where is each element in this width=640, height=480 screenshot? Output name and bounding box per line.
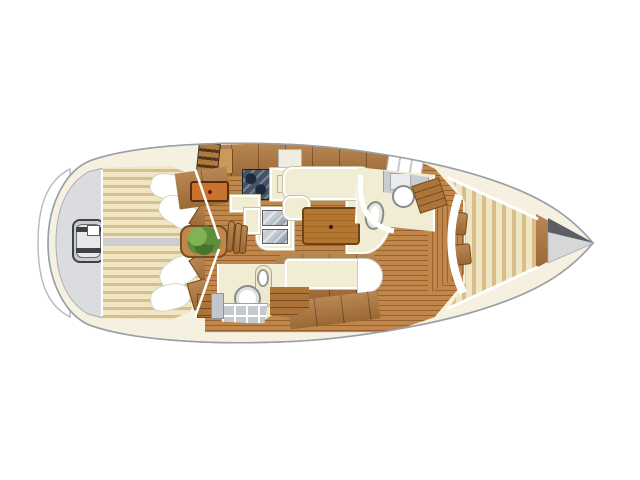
v-berth-step <box>452 243 472 266</box>
saloon-table <box>302 207 360 245</box>
drawer-knob <box>208 190 212 194</box>
locker-hatch <box>87 225 100 236</box>
galley-sink <box>262 229 288 244</box>
chart-table-drawer <box>190 181 229 202</box>
v-berth-step <box>449 211 468 236</box>
aft-head-step <box>211 293 224 319</box>
interior <box>0 0 640 480</box>
sink-bowl <box>257 269 269 287</box>
boat-floorplan <box>0 0 640 480</box>
locker-bar-bottom <box>76 248 101 253</box>
saloon-bench <box>285 259 361 289</box>
plant <box>187 226 221 256</box>
aft-head-shower <box>221 303 268 324</box>
bow-bulkhead <box>536 214 550 268</box>
